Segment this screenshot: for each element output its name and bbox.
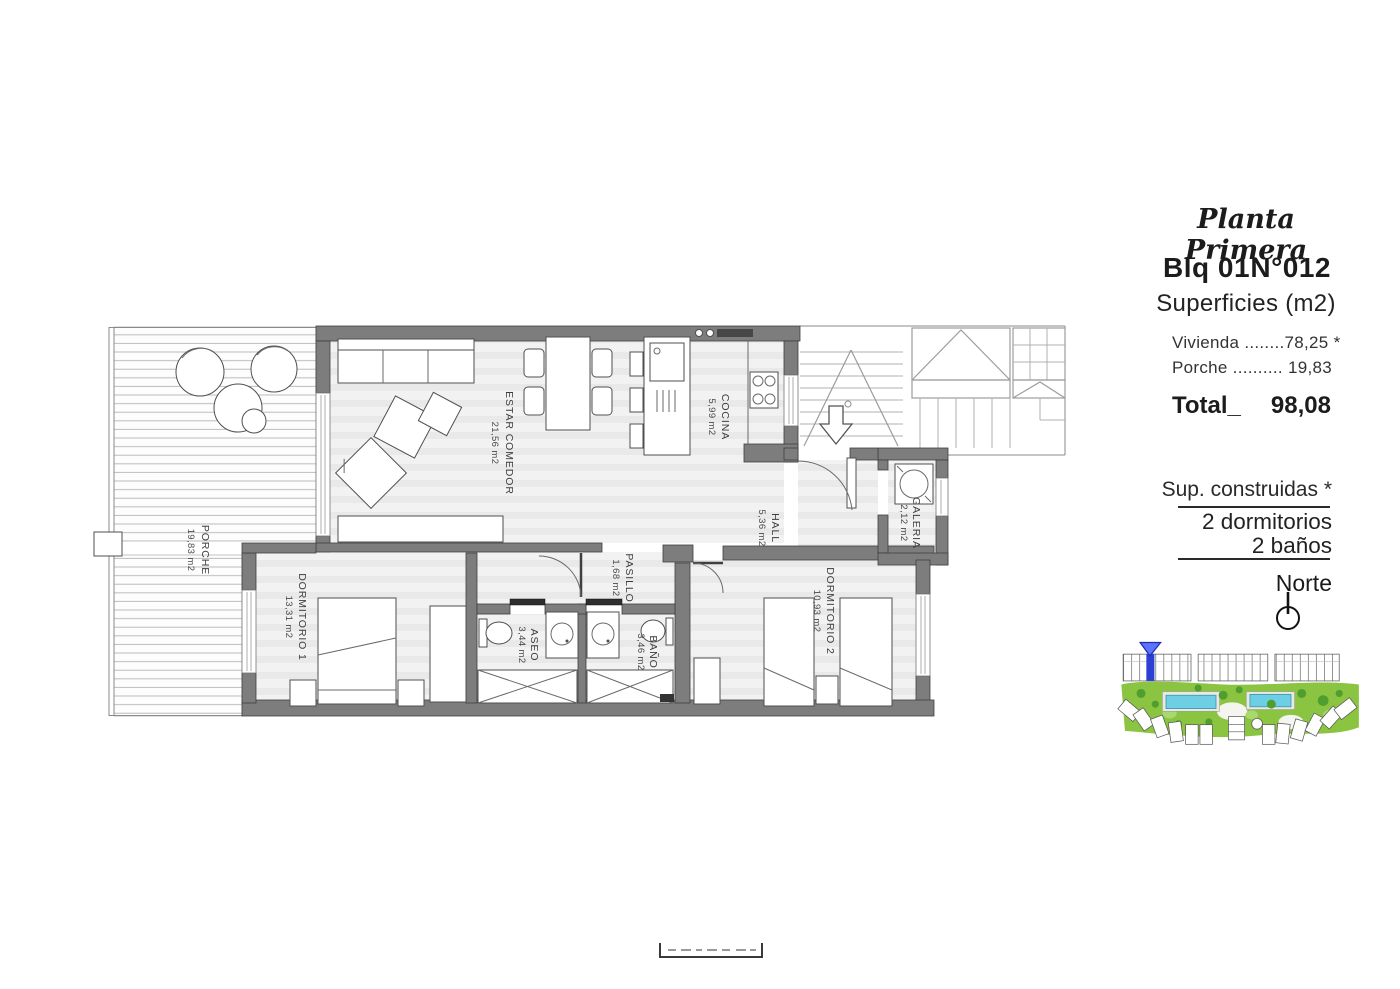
bedrooms-count: 2 dormitorios xyxy=(1140,509,1332,535)
label-estar: ESTAR COMEDOR xyxy=(503,391,515,495)
galeria-window xyxy=(936,478,948,516)
scale-bar xyxy=(660,943,762,957)
porch-step xyxy=(94,532,122,556)
living-window xyxy=(316,393,330,536)
stool xyxy=(630,352,643,376)
nightstand xyxy=(398,680,424,706)
site-plan-illustration xyxy=(1116,638,1366,756)
bathrooms-count: 2 baños xyxy=(1140,533,1332,559)
area-cocina: 5,99 m2 xyxy=(706,398,717,435)
divider-line xyxy=(1178,506,1330,508)
block-unit-row: Blq 01 N°012 xyxy=(1163,252,1331,284)
area-porche: 19,83 m2 xyxy=(185,529,196,572)
label-galeria: GALERIA xyxy=(910,497,922,549)
area-aseo: 3,44 m2 xyxy=(516,626,527,663)
shower xyxy=(478,670,577,703)
vivienda-surface-row: Vivienda ........78,25 * xyxy=(1172,333,1341,353)
label-bano: BAÑO xyxy=(647,635,660,668)
label-dorm1: DORMITORIO 1 xyxy=(296,573,308,661)
area-estar: 21,56 m2 xyxy=(489,422,500,465)
label-hall: HALL xyxy=(769,513,781,543)
stool xyxy=(630,388,643,412)
page: PORCHE 19,83 m2 ESTAR COMEDOR 21,56 m2 C… xyxy=(0,0,1400,989)
hob xyxy=(750,372,778,408)
area-bano: 3,46 m2 xyxy=(635,633,646,670)
aseo-sliding-door xyxy=(510,599,545,605)
divider-line xyxy=(1178,558,1330,560)
nightstand xyxy=(816,676,838,704)
kitchen-window xyxy=(784,375,798,426)
building-rows xyxy=(1123,654,1339,681)
single-bed xyxy=(764,598,814,706)
total-value: 98,08 xyxy=(1271,392,1331,420)
total-row: Total_ 98,08 xyxy=(1172,392,1331,420)
highlighted-unit xyxy=(1146,654,1154,681)
bano-sliding-door xyxy=(586,599,622,605)
label-cocina: COCINA xyxy=(719,394,731,440)
block-label: Blq 01 xyxy=(1163,252,1250,284)
dorm1-window xyxy=(242,590,256,673)
sofa xyxy=(338,339,474,383)
area-galeria: 2,12 m2 xyxy=(898,504,909,541)
single-bed xyxy=(840,598,892,706)
washbasin xyxy=(546,612,578,658)
north-compass-icon xyxy=(1268,588,1308,632)
label-dorm2: DORMITORIO 2 xyxy=(824,567,836,655)
nightstand xyxy=(290,680,316,706)
unit-label: N°012 xyxy=(1250,252,1331,284)
stairwell xyxy=(800,326,1065,455)
dorm2-window xyxy=(916,594,930,676)
porche-surface-row: Porche .......... 19,83 xyxy=(1172,358,1332,378)
total-label: Total_ xyxy=(1172,392,1241,420)
label-porche: PORCHE xyxy=(199,525,211,575)
cabinet xyxy=(694,658,720,704)
area-dorm2: 10,93 m2 xyxy=(811,590,822,633)
label-pasillo: PASILLO xyxy=(623,553,635,602)
label-aseo: ASEO xyxy=(528,629,540,662)
area-hall: 5,36 m2 xyxy=(756,509,767,546)
double-bed xyxy=(318,598,396,704)
sideboard xyxy=(338,516,503,542)
surfaces-heading: Superficies (m2) xyxy=(1140,290,1352,318)
built-surfaces-note: Sup. construidas * xyxy=(1140,478,1332,502)
kitchen-island xyxy=(644,337,690,455)
area-pasillo: 1,68 m2 xyxy=(610,559,621,596)
bath-niche xyxy=(660,694,674,702)
washbasin xyxy=(587,612,619,658)
stair-block-right xyxy=(912,328,1065,448)
wardrobe xyxy=(430,606,466,702)
stool xyxy=(630,424,643,448)
area-dorm1: 13,31 m2 xyxy=(283,596,294,639)
